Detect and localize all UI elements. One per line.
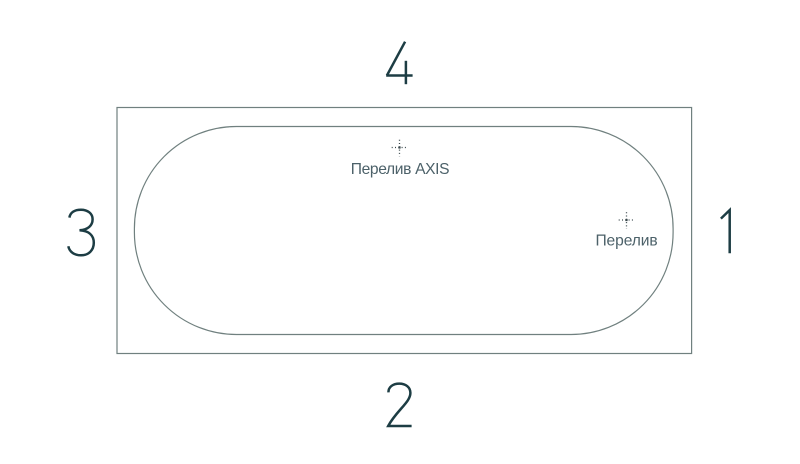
svg-text:Перелив AXIS: Перелив AXIS xyxy=(351,161,449,178)
svg-text:Перелив: Перелив xyxy=(595,233,657,250)
